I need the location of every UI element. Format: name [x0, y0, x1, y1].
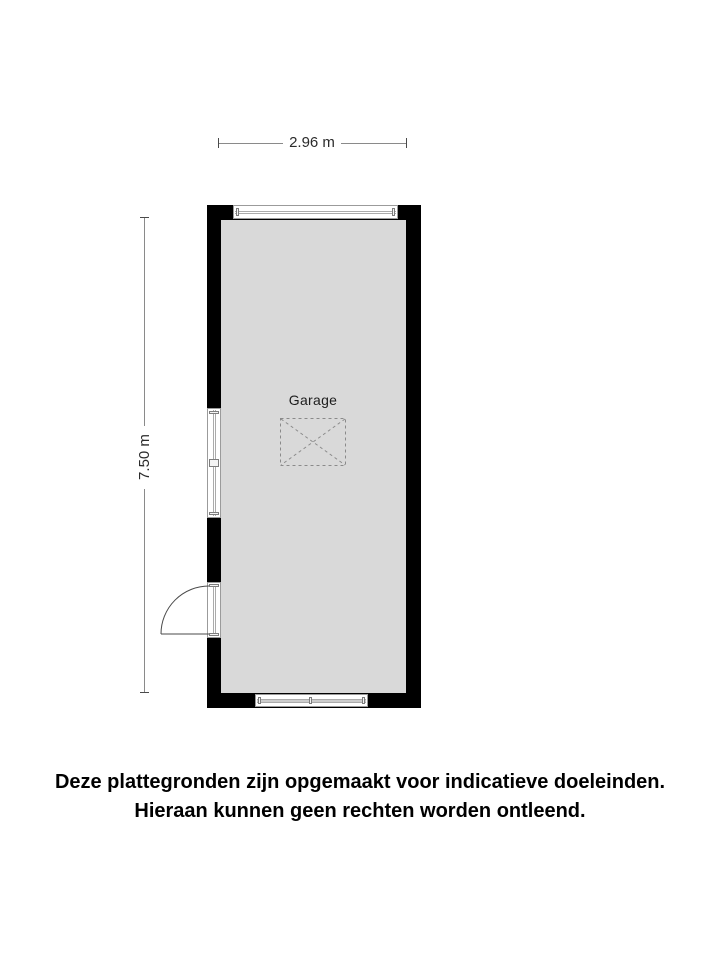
- window-bottom-cap-left: [258, 697, 261, 704]
- floorplan-page: 2.96 m 7.50 m Garage: [0, 0, 720, 960]
- window-top-cap-right: [392, 208, 395, 216]
- window-bottom-cap-right: [362, 697, 365, 704]
- window-bottom-divider: [309, 697, 312, 704]
- window-top-cap-left: [236, 208, 239, 216]
- dimension-width-line-right: [341, 143, 407, 144]
- window-top-glazing: [235, 211, 396, 214]
- window-left: [207, 408, 221, 518]
- skylight-marker: [280, 418, 346, 466]
- window-left-cap-bottom: [209, 512, 219, 515]
- dimension-width-label: 2.96 m: [283, 134, 341, 151]
- dimension-width-tick-right: [406, 138, 407, 148]
- door-swing-arc: [161, 586, 209, 634]
- disclaimer-line-2: Hieraan kunnen geen rechten worden ontle…: [0, 797, 720, 826]
- disclaimer-line-1: Deze plattegronden zijn opgemaakt voor i…: [0, 768, 720, 797]
- dimension-height-tick-bottom: [140, 692, 149, 693]
- window-bottom: [255, 694, 368, 707]
- dimension-height-line-top: [144, 217, 145, 426]
- door-swing: [155, 578, 217, 640]
- dimension-height-line-bottom: [144, 489, 145, 693]
- disclaimer: Deze plattegronden zijn opgemaakt voor i…: [0, 768, 720, 826]
- window-top: [233, 205, 398, 219]
- dimension-width-tick-left: [218, 138, 219, 148]
- window-left-divider: [209, 459, 219, 467]
- room-label: Garage: [270, 392, 356, 408]
- dimension-height-label: 7.50 m: [129, 427, 159, 487]
- dimension-height-tick-top: [140, 217, 149, 218]
- window-left-cap-top: [209, 411, 219, 414]
- dimension-width-line-left: [218, 143, 283, 144]
